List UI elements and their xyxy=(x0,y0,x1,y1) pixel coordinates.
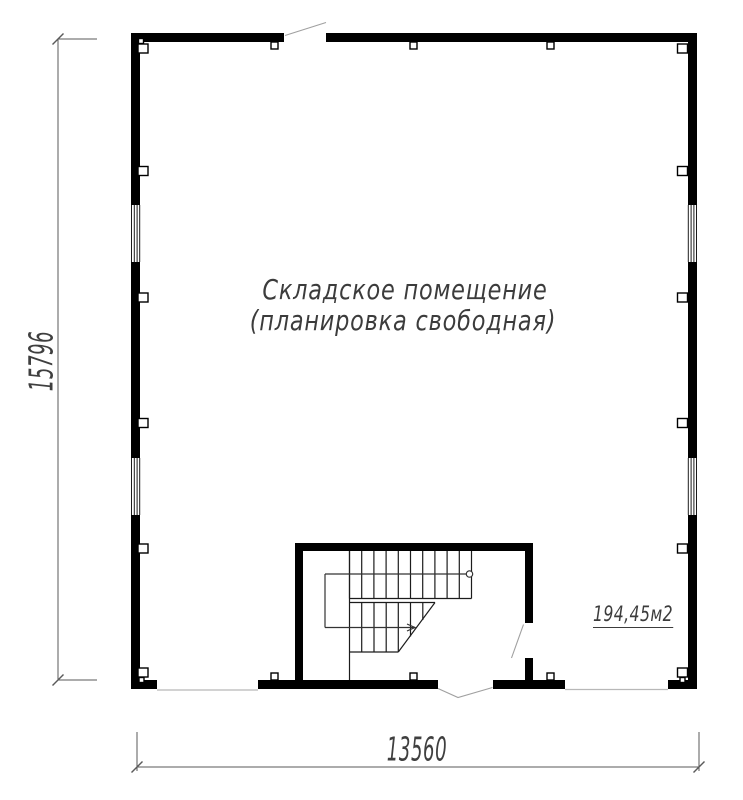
wall-left-segment-3 xyxy=(131,515,140,689)
column-marker xyxy=(547,673,554,680)
windows xyxy=(132,205,697,515)
column-marker xyxy=(410,673,417,680)
column-marker xyxy=(138,293,148,302)
column-marker xyxy=(139,39,144,44)
area-label: 194,45м2 xyxy=(593,604,673,628)
column-marker xyxy=(678,167,688,176)
door-swing-stair-enclosure xyxy=(512,625,524,659)
opening-thresholds xyxy=(157,690,668,691)
column-marker xyxy=(680,678,685,683)
stair-enclosure-left-wall xyxy=(295,543,303,689)
column-marker xyxy=(678,44,688,53)
wall-right-segment-1 xyxy=(688,33,697,205)
window-left-lower xyxy=(132,458,140,515)
stair-enclosure xyxy=(295,543,533,689)
room-label-line1: Складское помещение xyxy=(262,276,547,304)
staircase xyxy=(325,551,473,680)
window-right-lower xyxy=(688,458,696,515)
column-marker xyxy=(271,673,278,680)
window-left-upper xyxy=(132,205,140,262)
stair-enclosure-right-wall-stub xyxy=(525,658,533,689)
wall-top-left-segment xyxy=(131,33,284,42)
column-marker xyxy=(138,544,148,553)
wall-left-segment-2 xyxy=(131,262,140,458)
stair-enclosure-right-wall xyxy=(525,543,533,623)
column-marker xyxy=(678,419,688,428)
column-marker xyxy=(138,419,148,428)
wall-top-right-segment xyxy=(326,33,697,42)
column-marker xyxy=(547,42,554,49)
door-swing-bottom-entrance xyxy=(438,688,493,698)
dimension-left-label: 15796 xyxy=(25,331,58,391)
walk-line-start-circle xyxy=(466,571,472,577)
column-marker xyxy=(138,668,148,677)
dimension-bottom-label: 13560 xyxy=(387,733,447,766)
column-marker xyxy=(678,293,688,302)
stair-enclosure-top-wall xyxy=(295,543,533,551)
column-markers xyxy=(138,39,688,683)
window-right-upper xyxy=(688,205,696,262)
room-label-line2: (планировка свободная) xyxy=(250,307,557,335)
column-marker xyxy=(139,678,144,683)
floor-plan-drawing xyxy=(0,0,743,800)
wall-left-segment-1 xyxy=(131,33,140,205)
column-marker xyxy=(271,42,278,49)
wall-right-segment-3 xyxy=(688,515,697,689)
wall-right-segment-2 xyxy=(688,262,697,458)
wall-bottom-segment-2 xyxy=(258,680,438,689)
floor-plan-canvas: Складское помещение (планировка свободна… xyxy=(0,0,743,800)
column-marker xyxy=(138,167,148,176)
door-swings xyxy=(285,23,524,698)
stair-upper-flight xyxy=(350,551,472,599)
exterior-walls xyxy=(131,33,697,689)
door-swing-top-entrance xyxy=(285,23,326,36)
column-marker xyxy=(138,44,148,53)
column-marker xyxy=(410,42,417,49)
column-marker xyxy=(678,668,688,677)
column-marker xyxy=(678,544,688,553)
